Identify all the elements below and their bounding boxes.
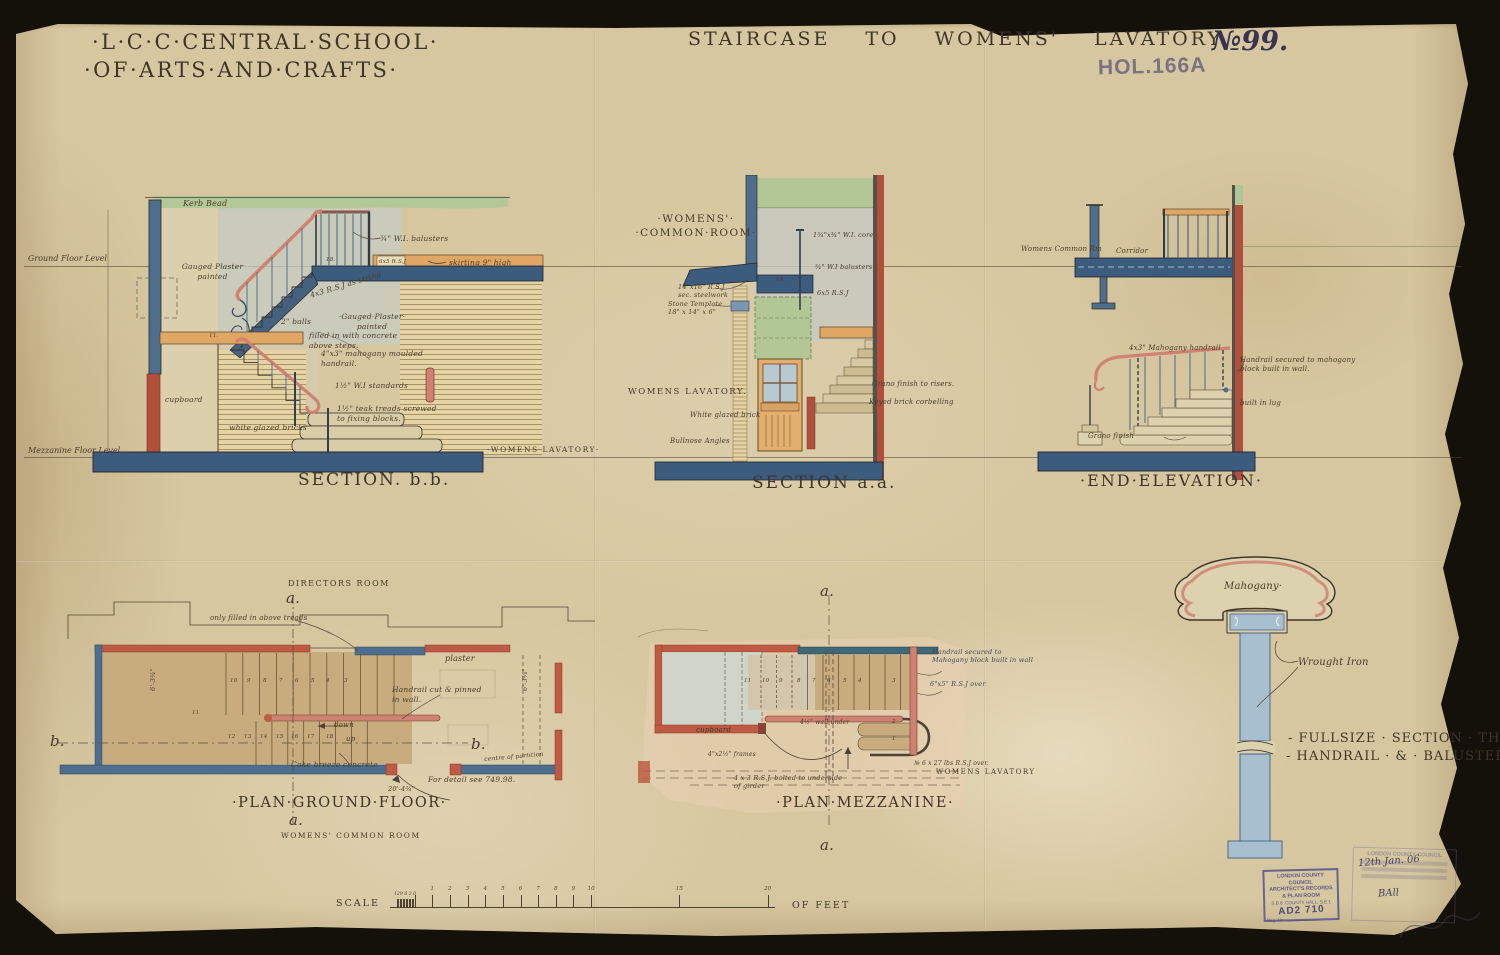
paper-crease — [594, 22, 597, 938]
paper-crease — [16, 560, 1470, 563]
scanned-drawing-sheet: { "page": { "school_line1": "·L·C·C·CENT… — [0, 0, 1500, 955]
paper-crease — [984, 22, 987, 938]
drawing-paper — [16, 22, 1470, 938]
